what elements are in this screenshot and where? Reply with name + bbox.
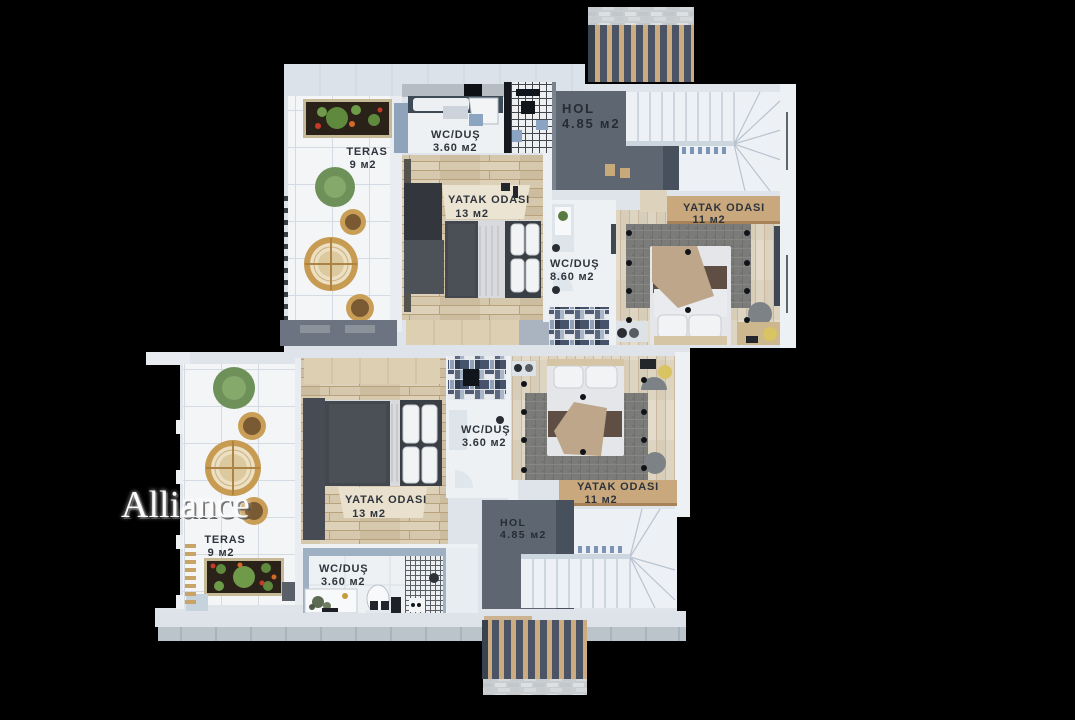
svg-text:YATAK ODASI: YATAK ODASI <box>683 202 765 214</box>
svg-text:WC/DUŞ: WC/DUŞ <box>550 258 599 270</box>
svg-text:13 м2: 13 м2 <box>455 208 489 220</box>
svg-text:8.60 м2: 8.60 м2 <box>550 271 594 283</box>
svg-text:3.60 м2: 3.60 м2 <box>462 437 506 449</box>
svg-text:3.60 м2: 3.60 м2 <box>433 142 477 154</box>
svg-text:YATAK ODASI: YATAK ODASI <box>577 481 659 493</box>
svg-text:3.60 м2: 3.60 м2 <box>321 576 365 588</box>
svg-text:TERAS: TERAS <box>346 146 387 158</box>
svg-text:9 м2: 9 м2 <box>208 547 235 559</box>
svg-text:WC/DUŞ: WC/DUŞ <box>319 563 368 575</box>
svg-text:4.85 м2: 4.85 м2 <box>500 529 547 541</box>
svg-text:HOL: HOL <box>500 517 526 529</box>
svg-text:YATAK ODASI: YATAK ODASI <box>448 194 530 206</box>
svg-text:9 м2: 9 м2 <box>350 159 377 171</box>
svg-text:YATAK ODASI: YATAK ODASI <box>345 494 427 506</box>
svg-text:Alliance: Alliance <box>121 484 250 526</box>
svg-text:11 м2: 11 м2 <box>693 214 726 226</box>
svg-text:WC/DUŞ: WC/DUŞ <box>431 129 480 141</box>
svg-text:4.85 м2: 4.85 м2 <box>562 116 620 131</box>
svg-text:TERAS: TERAS <box>204 534 245 546</box>
svg-text:11 м2: 11 м2 <box>585 494 618 506</box>
svg-text:13 м2: 13 м2 <box>352 508 386 520</box>
svg-text:HOL: HOL <box>562 101 595 116</box>
svg-text:WC/DUŞ: WC/DUŞ <box>461 424 510 436</box>
